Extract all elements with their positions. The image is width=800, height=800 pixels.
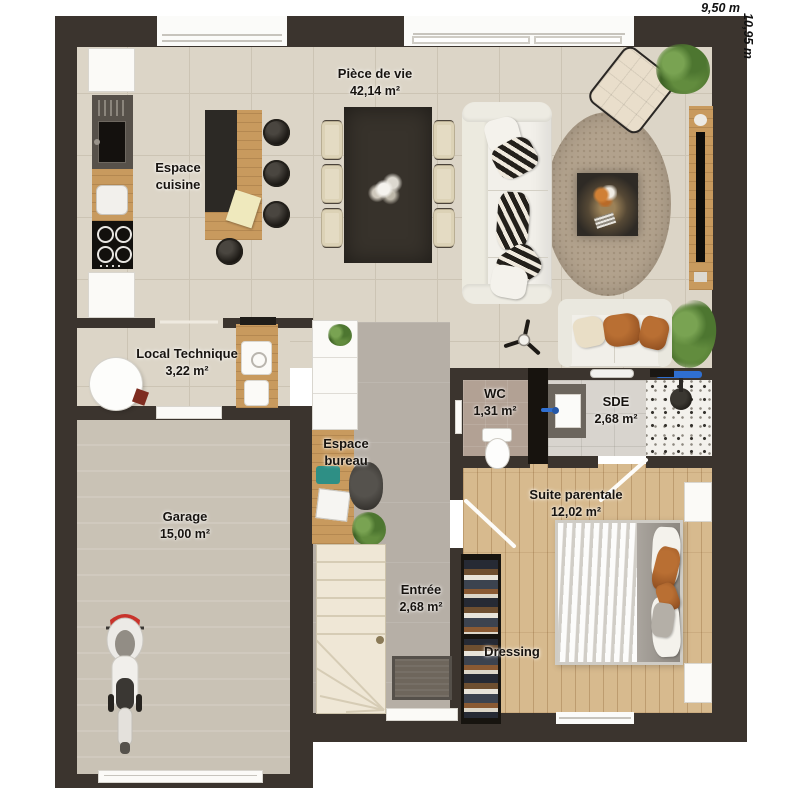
wall-garage-right [290,406,313,780]
room-area: 1,31 m² [473,403,516,419]
room-label-wc: WC 1,31 m² [473,386,516,419]
window-living [404,16,634,46]
washing-machine [241,341,272,375]
bed [555,520,683,665]
room-name: Entrée [399,582,442,599]
towel-radiator [590,369,634,378]
wall-sde-bottom-left [548,456,598,468]
room-name: Dressing [484,644,540,661]
tv-console [689,106,713,290]
wall-left [55,16,77,788]
dimension-height: 10,95 m [741,13,755,59]
dining-chair [321,209,343,247]
room-name: SDE [594,394,637,411]
room-name: Pièce de vie [338,66,412,83]
window-bedroom [556,712,634,724]
window-kitchen [157,16,287,46]
room-label-local-technique: Local Technique 3,22 m² [136,346,238,379]
wardrobe [461,560,501,718]
laundry-basket [244,380,269,406]
front-door [386,708,458,721]
kitchen-counter-wood [92,169,133,221]
bar-stool [263,119,290,146]
room-name: WC [473,386,516,403]
vanity [548,384,586,438]
staircase [316,544,386,714]
loveseat-pillow [602,312,642,349]
room-area: 3,22 m² [136,363,238,379]
kitchen-counter-dark [92,95,133,169]
bar-stool [216,238,243,265]
bar-stool [263,201,290,228]
wc-door-leaf [455,400,462,434]
room-label-garage: Garage 15,00 m² [160,509,210,542]
room-area: 2,68 m² [594,411,637,427]
kitchen-cabinet [88,272,135,318]
room-label-espace-cuisine: Espace cuisine [142,160,214,194]
laptop [315,488,350,522]
room-name: Espace bureau [314,436,378,470]
floor-plan: Pièce de vie 42,14 m² Espace cuisine Loc… [0,0,800,800]
room-name: Suite parentale [529,487,622,504]
plant [656,44,710,94]
wall-sde-bottom-right [646,456,712,468]
door-garage-lt [156,406,222,419]
room-label-sde: SDE 2,68 m² [594,394,637,427]
shower-stem [679,378,683,392]
fridge [88,48,135,92]
doormat [392,656,452,700]
ceiling-fan [502,318,546,362]
dimension-width: 9,50 m [560,1,740,15]
table-books [594,212,616,229]
nightstand [684,663,712,703]
lt-console [236,324,278,408]
room-area: 42,14 m² [338,83,412,99]
dining-chair [433,209,455,247]
garage-door [98,770,263,783]
duvet [558,523,638,662]
sofa-pillow [495,191,531,251]
room-area: 2,68 m² [399,599,442,615]
console-decor [694,272,707,282]
room-label-entree: Entrée 2,68 m² [399,582,442,615]
room-area: 15,00 m² [160,526,210,542]
dining-chair [433,165,455,203]
toilet-bowl [485,438,510,469]
cooktop [92,221,133,269]
wall-lt-top-left [55,318,155,328]
room-label-dressing: Dressing [484,644,540,661]
wall-wc-sde-divider [528,368,548,464]
faucet-head [552,407,559,414]
wall-bottom [313,713,747,742]
table-centerpiece [364,169,408,209]
tv [696,132,705,262]
nightstand [684,482,712,522]
room-label-espace-bureau: Espace bureau [314,436,378,470]
room-name: Local Technique [136,346,238,363]
shower-shelf-items [650,369,674,377]
coffee-machine [96,185,128,215]
room-name: Espace cuisine [142,160,214,194]
sink-faucet [94,139,100,145]
dining-chair [433,121,455,159]
dining-chair [321,165,343,203]
wall-entree-upper [450,368,463,500]
wall-right [712,16,747,742]
room-area: 12,02 m² [529,504,622,520]
lt-shelf-items [240,317,276,325]
dining-table [344,107,432,263]
console-decor [694,114,707,126]
plant [352,512,386,546]
table-flowers [591,185,617,207]
room-label-suite-parentale: Suite parentale 12,02 m² [529,487,622,520]
bar-stool [263,160,290,187]
dining-chair [321,121,343,159]
motorcycle [98,606,152,758]
room-label-piece-de-vie: Pièce de vie 42,14 m² [338,66,412,99]
plant [328,324,352,346]
room-name: Garage [160,509,210,526]
coffee-table [577,173,638,236]
